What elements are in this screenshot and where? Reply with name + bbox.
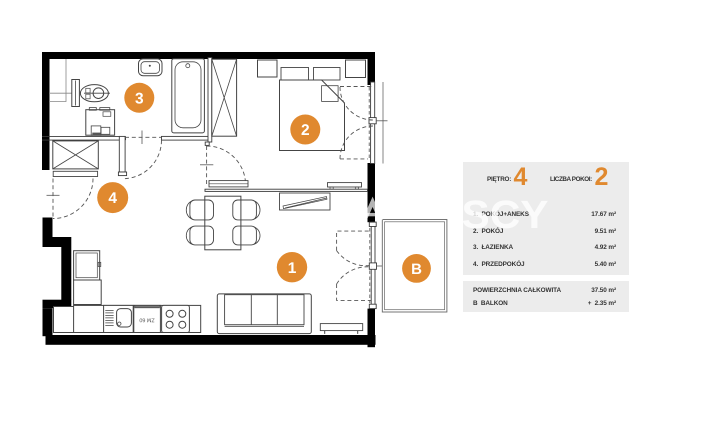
svg-text:4: 4 <box>108 190 117 207</box>
svg-text:2: 2 <box>301 122 310 139</box>
svg-text:B: B <box>411 261 422 278</box>
svg-text:1: 1 <box>288 260 297 277</box>
svg-text:ZM 60: ZM 60 <box>139 317 154 323</box>
svg-text:3: 3 <box>135 90 144 107</box>
